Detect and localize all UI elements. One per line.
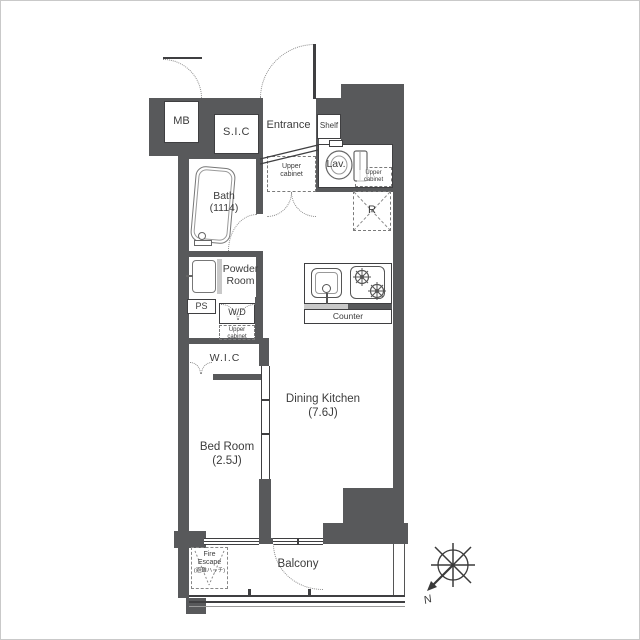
hall-door-arc: [291, 192, 316, 217]
fire-escape-line3: (避難ハッチ): [192, 568, 227, 574]
sliding-door-tick: [261, 433, 270, 435]
basin-handle-icon: [186, 275, 193, 277]
bedroom-size: (2.5J): [189, 455, 265, 469]
hall-door-arc: [267, 192, 292, 217]
fire-escape-label: Fire Escape (避難ハッチ): [192, 551, 227, 574]
bedroom-label: Bed Room (2.5J): [189, 441, 265, 468]
wic-label: W.I.C: [189, 352, 261, 364]
wall-segment: [259, 479, 271, 538]
dining-kitchen-label: Dining Kitchen (7.6J): [263, 393, 383, 420]
bath-name: Bath: [198, 190, 250, 202]
refrigerator-label: R: [353, 204, 391, 217]
balcony-railing: [189, 601, 405, 603]
railing-post: [308, 589, 311, 596]
entrance-label: Entrance: [260, 119, 317, 132]
balcony-side-pillar: [393, 544, 405, 597]
balcony-label: Balcony: [267, 558, 329, 572]
bath-faucet-icon: [198, 232, 206, 240]
wall-segment: [178, 154, 263, 159]
wall-segment: [189, 538, 204, 544]
wall-segment: [214, 98, 263, 114]
front-door-arc: [260, 44, 315, 98]
wall-segment: [178, 374, 189, 380]
wall-segment: [178, 548, 189, 598]
upper-cabinet-entrance-label: Upper cabinet: [270, 163, 313, 180]
wall-segment: [255, 297, 263, 344]
wall-segment: [178, 159, 189, 531]
bedroom-window: [204, 538, 259, 545]
floor-plan: N MB S.I.C Entrance Shelf Upper cabinet …: [0, 0, 640, 640]
lav-label: Lav.: [319, 158, 353, 170]
bath-size: (1114): [198, 202, 250, 214]
upper-cabinet-wd-label: Upper cabinet: [221, 327, 253, 341]
stove: [350, 266, 385, 299]
compass-rose: N: [422, 543, 475, 607]
dining-kitchen-size: (7.6J): [263, 407, 383, 421]
sink-faucet-icon: [322, 284, 331, 293]
wd-label: W/D: [219, 307, 255, 318]
wall-segment: [316, 98, 343, 114]
bath-door-arc: [228, 214, 257, 251]
wall-segment: [341, 84, 404, 144]
lavatory-niche: [329, 140, 343, 147]
washbasin: [192, 260, 216, 293]
mb-door-arc: [163, 59, 202, 98]
balcony-railing: [189, 595, 405, 597]
wall-segment: [256, 159, 263, 214]
wall-segment: [393, 144, 404, 488]
mb-door-leaf: [163, 57, 202, 59]
shelf-label: Shelf: [316, 121, 342, 130]
sic-label: S.I.C: [214, 126, 259, 139]
wall-segment: [178, 251, 263, 257]
powder-room-label: Powder Room: [218, 263, 263, 288]
bath-fixture-icon: [194, 240, 212, 246]
fire-escape-line2: Escape: [192, 559, 227, 567]
wall-segment: [343, 488, 404, 523]
balcony-railing: [189, 606, 405, 607]
bath-label: Bath (1114): [198, 190, 250, 215]
compass-north-label: N: [422, 593, 433, 607]
bedroom-name: Bed Room: [189, 441, 265, 455]
upper-cabinet-lav-label: Upper cabinet: [357, 170, 390, 184]
front-door-leaf: [313, 44, 316, 99]
ps-label: PS: [187, 301, 216, 312]
railing-post: [248, 589, 251, 596]
mb-label: MB: [164, 115, 199, 128]
counter-label: Counter: [304, 311, 392, 321]
dining-kitchen-name: Dining Kitchen: [263, 393, 383, 407]
wall-segment: [323, 523, 408, 544]
wall-segment: [259, 538, 273, 544]
fire-escape-line1: Fire: [192, 551, 227, 559]
